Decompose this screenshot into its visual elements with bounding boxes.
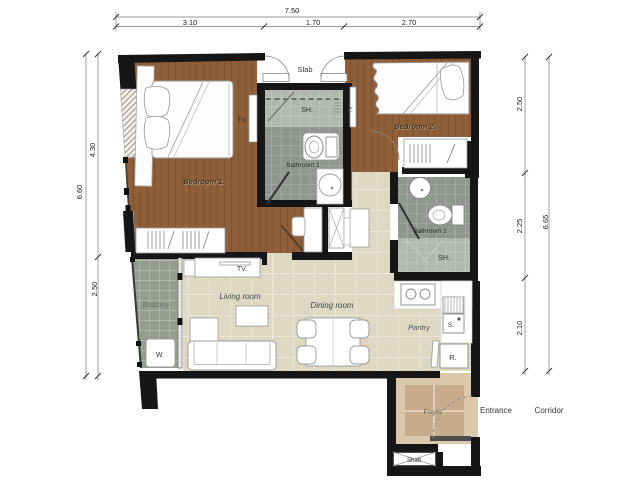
svg-text:6.60: 6.60 (75, 185, 84, 200)
svg-text:Shaft: Shaft (407, 458, 421, 464)
svg-text:1.70: 1.70 (306, 18, 321, 27)
svg-text:TV.: TV. (237, 266, 247, 273)
svg-text:Dining room: Dining room (310, 301, 353, 310)
svg-text:SH.: SH. (438, 255, 450, 262)
svg-text:2.25: 2.25 (515, 219, 524, 234)
svg-text:SH.: SH. (301, 107, 313, 114)
svg-text:Bedroom 2.: Bedroom 2. (394, 122, 435, 131)
svg-text:2.50: 2.50 (515, 97, 524, 112)
svg-text:R.: R. (449, 353, 457, 362)
svg-text:7.50: 7.50 (285, 6, 300, 15)
svg-text:TV.: TV. (349, 105, 355, 112)
svg-text:Corridor: Corridor (535, 406, 564, 415)
svg-text:Slab: Slab (297, 65, 312, 74)
svg-text:S.: S. (448, 322, 454, 329)
svg-text:Living room: Living room (219, 292, 261, 301)
svg-text:Entrance: Entrance (480, 406, 513, 415)
svg-text:2.50: 2.50 (90, 282, 99, 297)
svg-text:Bedroom 1.: Bedroom 1. (183, 177, 224, 186)
svg-text:4.30: 4.30 (88, 143, 97, 158)
svg-text:Bathroom 2: Bathroom 2 (413, 228, 447, 235)
svg-text:2.70: 2.70 (402, 18, 417, 27)
svg-text:W.: W. (156, 352, 164, 359)
svg-text:6.65: 6.65 (541, 215, 550, 230)
svg-text:TV.: TV. (237, 117, 247, 124)
svg-text:3.10: 3.10 (183, 18, 198, 27)
svg-text:Balcony: Balcony (143, 300, 171, 309)
svg-text:Foyer: Foyer (423, 407, 443, 416)
svg-text:2.10: 2.10 (515, 321, 524, 336)
svg-text:Pantry: Pantry (408, 323, 431, 332)
svg-text:Bathroom 1: Bathroom 1 (286, 162, 320, 169)
